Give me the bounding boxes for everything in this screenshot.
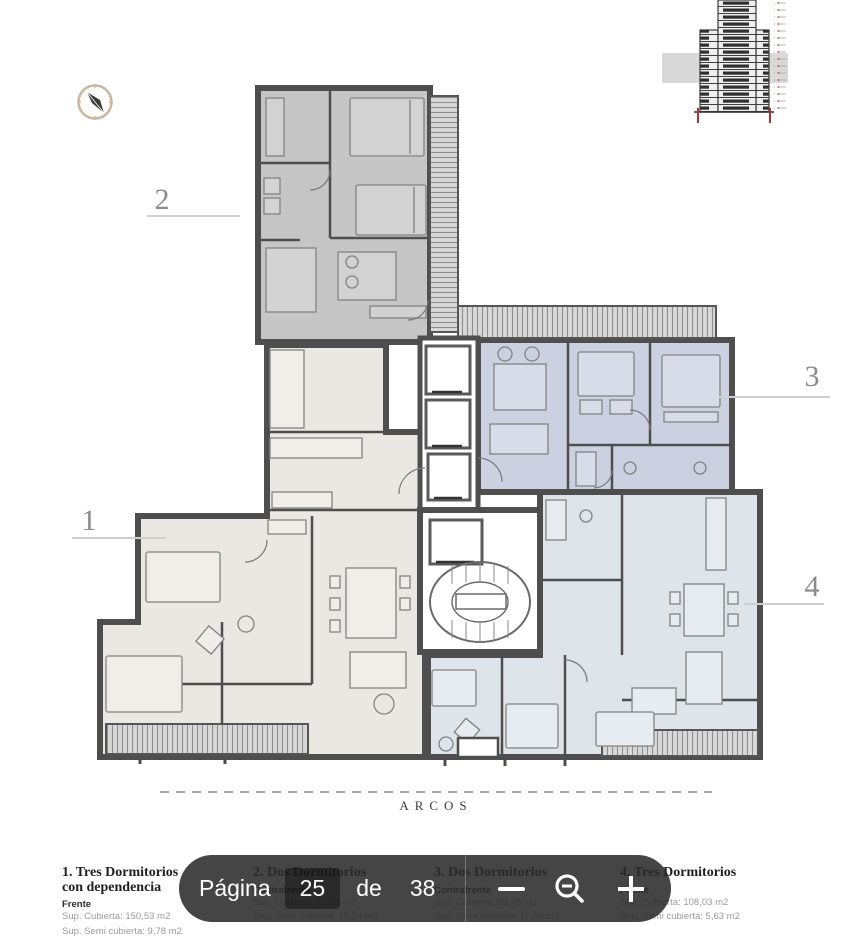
legend-area-line: Sup. Semi cubierta: 9,78 m2 (62, 925, 240, 939)
plus-icon (616, 874, 646, 904)
minus-icon (498, 887, 525, 891)
building-elevation-diagram (662, 0, 788, 123)
of-word-label: de (356, 875, 382, 902)
total-pages-label: 38 (410, 875, 436, 902)
unit-label-4: 4 (805, 570, 820, 603)
zoom-out-button[interactable] (552, 871, 588, 907)
zoom-increase-button[interactable] (614, 872, 648, 906)
unit-label-2: 2 (155, 183, 170, 216)
elevator-core (420, 338, 478, 510)
pdf-viewer-page: 1 2 3 4 ARCOS 1. Tres Dormitorios con de… (0, 0, 851, 950)
compass-icon (77, 84, 113, 120)
building-entrance-notch (458, 738, 498, 757)
toolbar-divider (465, 855, 466, 922)
terrace-strip-unit3 (458, 306, 716, 338)
unit-label-3: 3 (805, 360, 820, 393)
unit-label-1: 1 (82, 504, 97, 537)
stair-core (420, 510, 540, 652)
street-label: ARCOS (399, 798, 472, 813)
balcony-strip-unit1 (106, 724, 308, 754)
viewer-toolbar: Página 25 de 38 (179, 855, 671, 922)
floor-plan-svg: 1 2 3 4 ARCOS (0, 0, 851, 950)
zoom-decrease-button[interactable] (496, 874, 526, 904)
page-word-label: Página (199, 875, 271, 902)
zoom-out-icon (553, 872, 587, 906)
page-number-input[interactable]: 25 (285, 868, 341, 909)
balcony-strip-east-unit2 (430, 96, 458, 332)
